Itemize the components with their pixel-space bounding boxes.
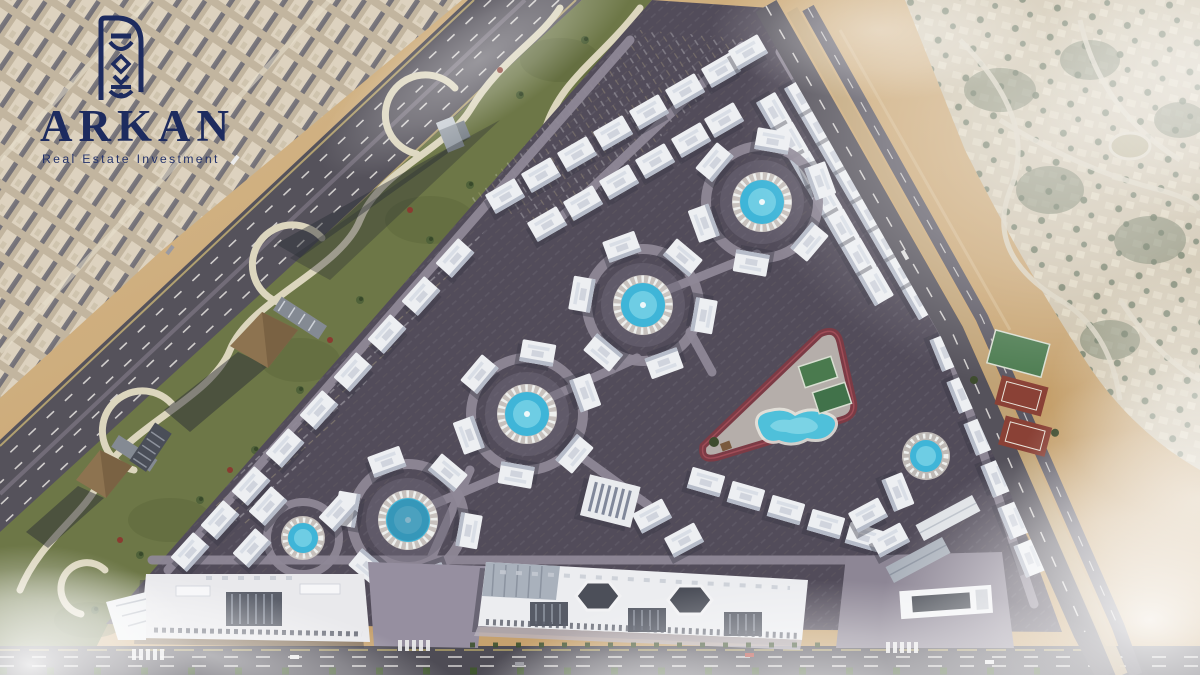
- masterplan-render: ARKAN Real Estate Investment: [0, 0, 1200, 675]
- arkan-logo-icon: [95, 12, 147, 100]
- arkan-logo: ARKAN Real Estate Investment: [40, 12, 270, 166]
- brand-tagline: Real Estate Investment: [42, 152, 270, 166]
- pool: [387, 499, 429, 541]
- brand-name: ARKAN: [40, 104, 270, 149]
